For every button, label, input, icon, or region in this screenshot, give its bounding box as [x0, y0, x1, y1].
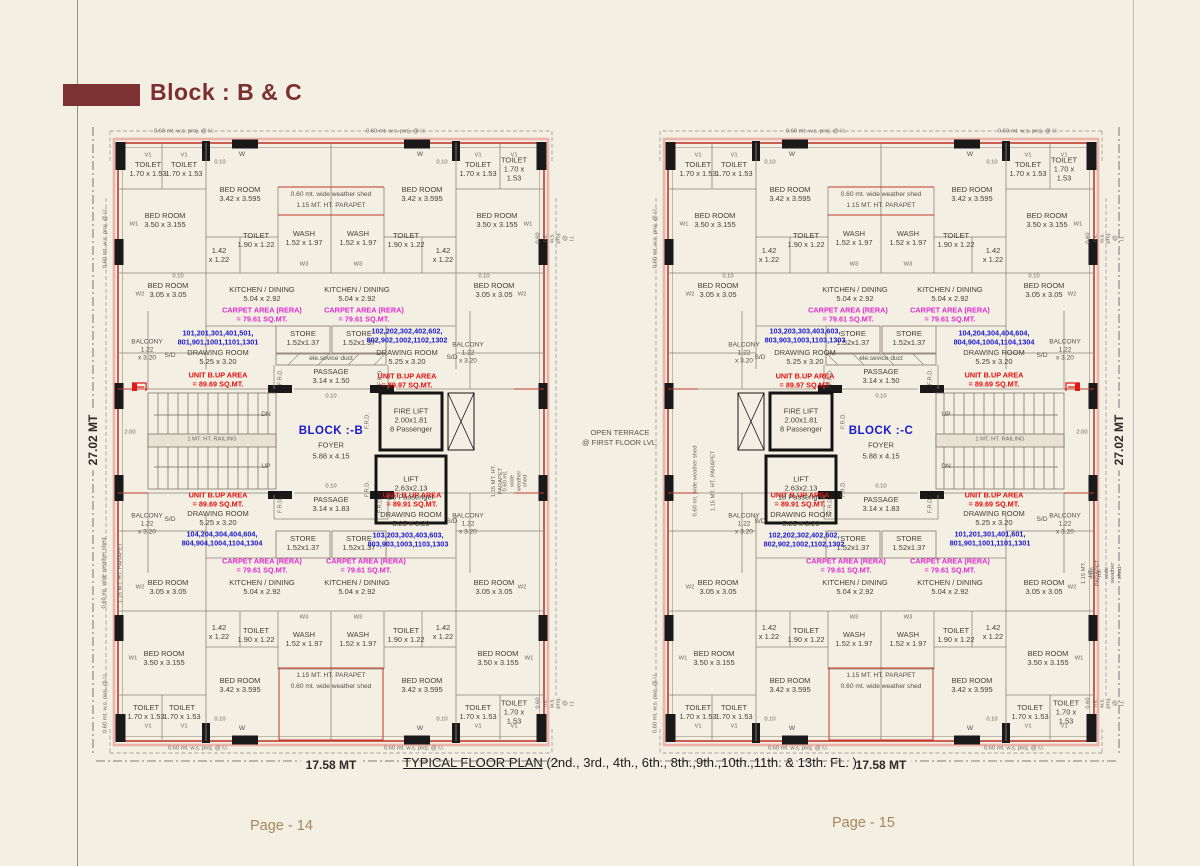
page-border-line — [77, 0, 78, 866]
open-terrace-line1: OPEN TERRACE — [558, 428, 682, 438]
floorplan-walls — [634, 121, 1128, 789]
caption-floors: (2nd., 3rd., 4th., 6th., 8th.,9th.,10th.… — [543, 755, 857, 770]
page-title: Block : B & C — [150, 79, 302, 106]
floor-plan-block-b: TOILET 1.70 x 1.53TOILET 1.70 x 1.53TOIL… — [118, 143, 544, 741]
page-border-line — [1133, 0, 1134, 866]
open-terrace-line2: @ FIRST FLOOR LVL. — [558, 438, 682, 448]
floor-plan-block-c: TOILET 1.70 x 1.53TOILET 1.70 x 1.53TOIL… — [668, 143, 1094, 741]
caption-title: TYPICAL FLOOR PLAN — [403, 755, 543, 770]
drawing-caption: TYPICAL FLOOR PLAN (2nd., 3rd., 4th., 6t… — [320, 755, 940, 770]
title-accent-bar — [63, 84, 140, 106]
page-number-right: Page - 15 — [832, 815, 895, 831]
open-terrace-note: OPEN TERRACE @ FIRST FLOOR LVL. — [558, 428, 682, 448]
drawing-sheet: { "header": { "title": "Block : B & C", … — [0, 0, 1200, 866]
page-number-left: Page - 14 — [250, 818, 313, 834]
floorplan-walls — [84, 121, 578, 789]
